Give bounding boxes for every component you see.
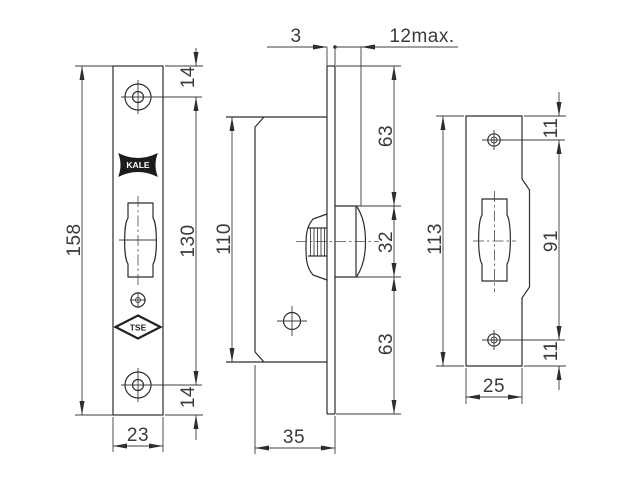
- dim-strike-height: 113: [425, 116, 464, 366]
- dim-text-cylinder-height: 32: [376, 231, 397, 253]
- dim-text-strike-height: 113: [425, 223, 446, 255]
- case-outline: [226, 117, 327, 362]
- dim-text-lower-span: 63: [376, 333, 397, 355]
- lock-technical-drawing: KALE TSE: [0, 0, 640, 480]
- cylinder-cutout-front: [119, 196, 157, 286]
- knurl-lines: [311, 228, 325, 256]
- dim-text-faceplate-hole-spacing: 130: [178, 224, 199, 257]
- dim-text-hole-bottom-offset: 14: [178, 386, 199, 408]
- dim-strike-width: 25: [466, 368, 522, 404]
- dim-chain-strike-holes: 11 91 11: [524, 92, 566, 390]
- dim-text-knob-protrusion: 12max.: [389, 26, 454, 47]
- dim-text-faceplate-height: 158: [64, 223, 85, 256]
- faceplate-edge: [327, 66, 335, 414]
- dim-text-strike-hole-bottom-offset: 11: [541, 341, 562, 362]
- technical-drawing-page: KALE TSE: [0, 0, 640, 480]
- dim-text-hole-top-offset: 14: [178, 66, 199, 88]
- dim-text-case-height: 110: [214, 223, 235, 255]
- case-hole: [277, 306, 307, 336]
- screw-symbol: [130, 292, 146, 308]
- strike-cylinder-cutout: [473, 191, 516, 292]
- dim-text-case-depth: 35: [283, 427, 305, 448]
- dim-text-faceplate-thickness: 3: [290, 26, 301, 47]
- dim-text-strike-hole-spacing: 91: [541, 230, 562, 252]
- dim-chain-hole-offsets: 14 130 14: [165, 48, 203, 440]
- dim-faceplate-thickness: 3: [267, 26, 337, 66]
- lock-side-view: 3 12max. 110: [214, 26, 458, 454]
- brand-logo: KALE: [119, 154, 157, 176]
- dim-chain-cylinder-position: 63 32 63: [336, 66, 401, 414]
- tse-logo: TSE: [116, 316, 161, 339]
- faceplate-front-view: KALE TSE: [64, 48, 203, 452]
- strike-plate-view: 113 11 91 11 25: [425, 92, 566, 404]
- dim-text-strike-hole-top-offset: 11: [541, 118, 562, 139]
- brand-logo-text: KALE: [126, 160, 149, 170]
- tse-logo-text: TSE: [130, 323, 147, 333]
- dim-text-upper-span: 63: [376, 125, 397, 147]
- dim-faceplate-height: 158: [64, 66, 113, 415]
- dim-faceplate-width: 23: [113, 417, 163, 452]
- dim-case-height: 110: [214, 117, 235, 362]
- dim-text-faceplate-width: 23: [127, 425, 149, 446]
- dim-case-depth: 35: [255, 365, 335, 454]
- dim-text-strike-width: 25: [483, 376, 505, 397]
- thumbturn-knob: [306, 214, 327, 280]
